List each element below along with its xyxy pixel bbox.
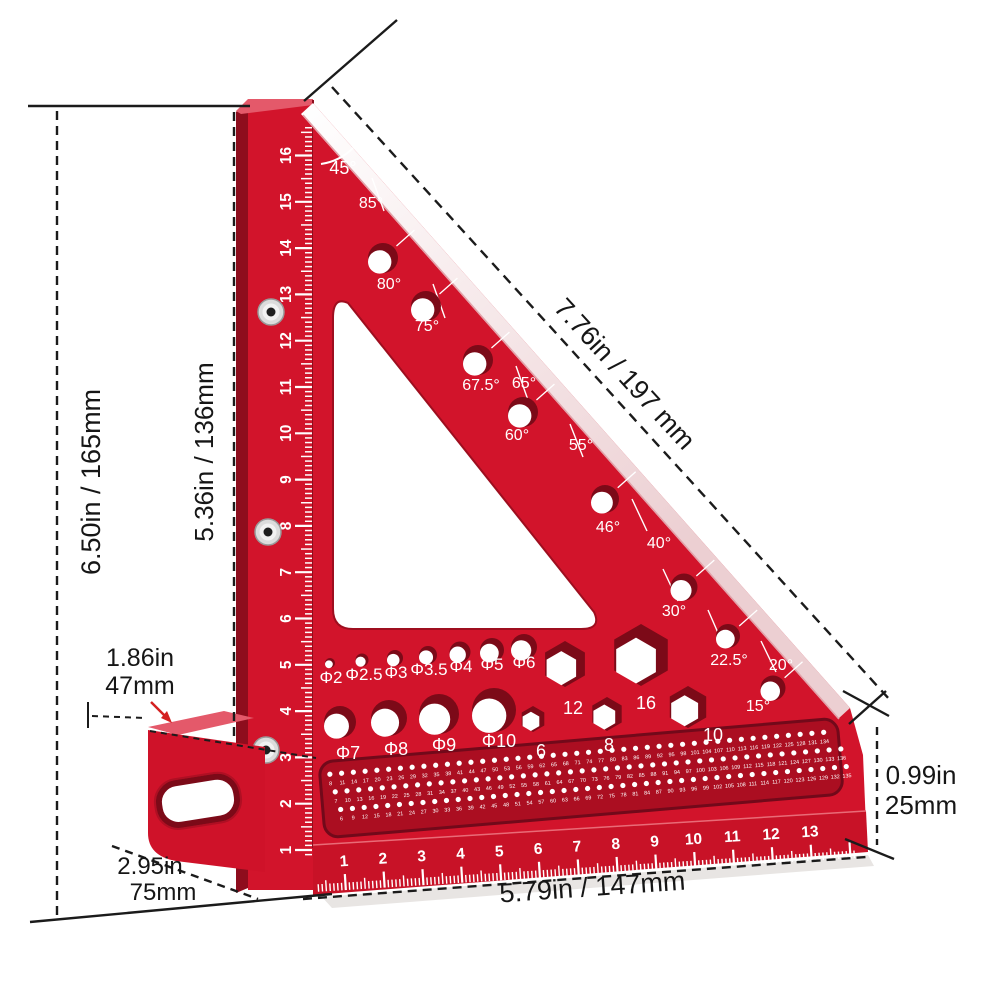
dot-grid-number: 11 xyxy=(339,780,345,786)
round-hole-opening xyxy=(324,714,349,739)
dot-grid-number: 116 xyxy=(749,745,758,752)
angle-label-40: 40° xyxy=(647,535,671,552)
dot-grid-number: 56 xyxy=(516,765,522,771)
dot-grid-number: 21 xyxy=(397,811,403,817)
dot-grid-number: 91 xyxy=(662,771,668,777)
foot-pointer-arrow xyxy=(151,702,172,723)
angle-label-15: 15° xyxy=(746,698,770,715)
b-ruler-tick xyxy=(850,842,851,858)
dot-grid-number: 46 xyxy=(486,786,492,792)
round-hole-opening xyxy=(591,492,613,514)
dim-depth-label-mm: 75mm xyxy=(130,879,197,906)
dot-grid-number: 112 xyxy=(743,764,752,771)
b-ruler-number: 2 xyxy=(378,850,388,868)
dot-grid-number: 80 xyxy=(610,757,616,763)
angle-label-85: 85° xyxy=(359,195,383,212)
angle-label-20: 20° xyxy=(769,657,793,674)
dot-grid-number: 110 xyxy=(726,747,735,754)
dot-grid-number: 39 xyxy=(468,805,474,811)
b-ruler-tick xyxy=(733,850,734,866)
dot-grid-number: 48 xyxy=(503,802,509,808)
dot-grid-number: 70 xyxy=(580,778,586,784)
dot-grid-number: 49 xyxy=(497,785,503,791)
angle-label-46: 46° xyxy=(596,519,620,536)
dot-grid-number: 73 xyxy=(592,777,598,783)
b-ruler-tick xyxy=(384,872,385,888)
b-ruler-number: 6 xyxy=(533,841,543,859)
dot-grid-number: 7 xyxy=(334,799,337,805)
b-ruler-number: 7 xyxy=(572,838,582,856)
angle-label-60: 60° xyxy=(505,427,529,444)
dot-grid-number: 87 xyxy=(656,789,662,795)
dot-grid-number: 104 xyxy=(702,749,711,756)
dot-grid-number: 130 xyxy=(813,758,822,765)
v-ruler-number: 2 xyxy=(278,799,295,808)
angle-label-75: 75° xyxy=(415,318,439,335)
dot-grid-number: 90 xyxy=(667,788,673,794)
hole-label-phi2: Φ2 xyxy=(319,668,342,687)
b-ruler-number: 12 xyxy=(762,826,780,844)
hole-label-phi2-5: Φ2.5 xyxy=(345,665,382,684)
dot-grid-number: 106 xyxy=(719,766,728,773)
dim-inner-height-label: 5.36in / 136mm xyxy=(189,362,219,541)
dot-grid-number: 83 xyxy=(621,756,627,762)
dot-grid-number: 28 xyxy=(415,792,421,798)
dot-grid-number: 43 xyxy=(474,787,480,793)
dot-grid-number: 113 xyxy=(738,746,747,753)
dot-grid-number: 88 xyxy=(650,772,656,778)
dot-grid-number: 60 xyxy=(550,798,556,804)
dot-grid-number: 30 xyxy=(432,808,438,814)
angle-label-45: 45° xyxy=(329,158,356,178)
b-ruler-tick xyxy=(792,851,793,862)
dot-grid-number: 14 xyxy=(351,779,357,785)
hex-label-8: 8 xyxy=(604,735,614,755)
hole-label-phi8: Φ8 xyxy=(384,739,408,759)
round-hole-opening xyxy=(472,699,506,733)
angle-label-80: 80° xyxy=(377,276,401,293)
dim-foot-label-in: 1.86in xyxy=(106,644,174,672)
hole-label-phi10: Φ10 xyxy=(482,731,516,751)
b-ruler-number: 4 xyxy=(456,845,466,863)
dot-grid-number: 118 xyxy=(767,762,776,769)
hole-label-phi7: Φ7 xyxy=(336,743,360,763)
dot-grid-number: 129 xyxy=(819,775,828,782)
dot-grid-number: 20 xyxy=(374,777,380,783)
b-ruler-tick xyxy=(753,853,754,864)
dot-grid-number: 107 xyxy=(714,748,723,755)
dot-grid-number: 75 xyxy=(609,793,615,799)
v-ruler-number: 11 xyxy=(278,378,295,395)
dot-grid-number: 51 xyxy=(515,801,521,807)
angle-label-22-5: 22.5° xyxy=(710,652,748,669)
b-ruler-tick xyxy=(326,880,327,891)
dot-grid-number: 133 xyxy=(825,757,834,764)
dot-grid-number: 117 xyxy=(772,779,781,786)
dot-grid-number: 24 xyxy=(409,810,415,816)
dot-grid-number: 99 xyxy=(703,785,709,791)
dot-grid-number: 128 xyxy=(796,741,805,748)
v-ruler-number: 16 xyxy=(278,147,295,165)
dot-grid-number: 64 xyxy=(556,780,562,786)
b-ruler-number: 5 xyxy=(494,843,504,861)
dot-grid-number: 6 xyxy=(340,816,343,822)
dot-grid-number: 109 xyxy=(731,765,740,772)
b-ruler-tick xyxy=(442,873,443,884)
b-ruler-number: 13 xyxy=(801,823,820,841)
dot-grid-number: 44 xyxy=(469,769,475,775)
hole-label-phi3: Φ3 xyxy=(384,663,407,682)
dot-grid-number: 65 xyxy=(551,762,557,768)
dot-grid-number: 78 xyxy=(620,792,626,798)
dot-grid-number: 9 xyxy=(352,815,355,821)
v-ruler-number: 14 xyxy=(278,239,295,257)
dot-grid-number: 97 xyxy=(686,769,692,775)
dot-grid-number: 120 xyxy=(784,778,793,785)
product-dimension-diagram: 12345678910111213141516 xyxy=(0,0,1000,1000)
dot-grid-number: 72 xyxy=(597,794,603,800)
dot-grid-number: 8 xyxy=(329,781,332,787)
dot-grid-number: 111 xyxy=(749,781,758,788)
hole-label-phi6: Φ6 xyxy=(512,653,535,672)
dot-grid-number: 18 xyxy=(385,812,391,818)
dim-overall-height-label: 6.50in / 165mm xyxy=(76,389,106,575)
dot-grid-number: 98 xyxy=(680,751,686,757)
v-ruler-number: 13 xyxy=(278,285,295,303)
b-ruler-number: 10 xyxy=(684,831,702,849)
dot-grid-number: 58 xyxy=(533,782,539,788)
round-hole-opening xyxy=(463,352,486,375)
dot-grid-number: 62 xyxy=(539,763,545,769)
hex-label-16: 16 xyxy=(636,693,656,713)
b-ruler-number: 9 xyxy=(650,833,660,851)
dot-grid-number: 34 xyxy=(439,790,445,796)
round-hole-opening xyxy=(671,580,692,601)
b-ruler-tick xyxy=(830,849,831,860)
dim-thickness-label-in: 0.99in xyxy=(886,760,957,790)
dot-grid-number: 86 xyxy=(633,755,639,761)
dot-grid-number: 37 xyxy=(450,789,456,795)
dim-depth-label-in: 2.95in xyxy=(117,853,182,880)
b-ruler-tick xyxy=(481,870,482,881)
dot-grid-number: 16 xyxy=(368,796,374,802)
round-hole-opening xyxy=(419,704,450,735)
dot-grid-number: 122 xyxy=(773,743,782,750)
dot-grid-number: 125 xyxy=(785,742,794,749)
b-ruler-tick xyxy=(772,847,773,863)
ext-line-hyp-top xyxy=(304,20,397,101)
dot-grid-number: 92 xyxy=(657,753,663,759)
dot-grid-number: 26 xyxy=(398,775,404,781)
screw-top xyxy=(258,299,284,325)
dot-grid-number: 19 xyxy=(380,795,386,801)
dot-grid-number: 17 xyxy=(363,778,369,784)
dot-grid-number: 36 xyxy=(456,806,462,812)
dot-grid-number: 23 xyxy=(386,776,392,782)
dim-line-foot-a xyxy=(92,716,146,718)
round-hole-opening xyxy=(371,709,399,737)
dot-grid-number: 61 xyxy=(545,781,551,787)
dot-grid-number: 33 xyxy=(444,807,450,813)
dot-grid-number: 131 xyxy=(808,740,817,747)
b-ruler-number: 11 xyxy=(724,828,742,846)
dot-grid-number: 79 xyxy=(615,775,621,781)
dot-grid-number: 32 xyxy=(422,773,428,779)
b-ruler-tick xyxy=(365,878,366,889)
dot-grid-number: 35 xyxy=(433,772,439,778)
dot-grid-number: 13 xyxy=(356,797,362,803)
v-ruler-number: 4 xyxy=(278,706,295,715)
dot-grid-number: 74 xyxy=(586,759,592,765)
dot-grid-number: 95 xyxy=(668,752,674,758)
hole-label-phi3-5: Φ3.5 xyxy=(410,660,447,679)
b-ruler-tick xyxy=(461,867,462,883)
dot-grid-number: 115 xyxy=(755,763,764,770)
dot-grid-number: 47 xyxy=(480,768,486,774)
angle-label-67-5: 67.5° xyxy=(462,377,500,394)
dot-grid-number: 94 xyxy=(674,770,680,776)
dot-grid-number: 55 xyxy=(521,783,527,789)
dot-grid-number: 40 xyxy=(462,788,468,794)
dot-grid-number: 126 xyxy=(807,776,816,783)
dot-grid-number: 89 xyxy=(645,754,651,760)
dot-grid-number: 108 xyxy=(737,782,746,789)
dot-grid-number: 68 xyxy=(563,761,569,767)
dot-grid-number: 50 xyxy=(492,767,498,773)
v-ruler-number: 10 xyxy=(278,425,295,442)
dot-grid-number: 102 xyxy=(713,784,722,791)
b-ruler-number: 8 xyxy=(611,836,621,854)
dot-grid-number: 82 xyxy=(627,774,633,780)
dot-grid-number: 103 xyxy=(708,767,717,774)
dot-grid-number: 15 xyxy=(374,813,380,819)
dot-grid-number: 100 xyxy=(696,768,705,775)
b-ruler-tick xyxy=(714,856,715,867)
v-ruler-number: 15 xyxy=(278,193,295,211)
dot-grid-number: 135 xyxy=(842,773,851,780)
dot-grid-number: 45 xyxy=(491,803,497,809)
dot-grid-number: 57 xyxy=(538,799,544,805)
dot-grid-number: 29 xyxy=(410,774,416,780)
hole-label-phi5: Φ5 xyxy=(480,655,503,674)
dot-grid-number: 25 xyxy=(403,793,409,799)
dot-grid-number: 105 xyxy=(725,783,734,790)
v-ruler-number: 12 xyxy=(278,332,295,349)
dot-grid-number: 12 xyxy=(362,814,368,820)
dot-grid-number: 27 xyxy=(421,809,427,815)
dot-grid-number: 59 xyxy=(527,764,533,770)
dot-grid-number: 134 xyxy=(820,739,829,746)
screw-middle xyxy=(255,519,281,545)
dot-grid-number: 41 xyxy=(457,770,463,776)
dot-grid-number: 124 xyxy=(790,760,799,767)
dot-grid-number: 85 xyxy=(639,773,645,779)
dot-grid-number: 66 xyxy=(573,796,579,802)
dot-grid-number: 71 xyxy=(574,760,580,766)
dot-grid-number: 119 xyxy=(761,744,770,751)
round-hole-opening xyxy=(716,630,735,649)
dim-foot-label-mm: 47mm xyxy=(105,672,174,700)
round-hole-opening xyxy=(368,250,391,273)
hole-label-phi4: Φ4 xyxy=(449,657,472,676)
angle-label-65: 65° xyxy=(512,375,536,392)
dot-grid-number: 101 xyxy=(690,750,699,757)
hole-label-phi9: Φ9 xyxy=(432,735,456,755)
b-ruler-tick xyxy=(403,875,404,886)
b-ruler-tick xyxy=(811,845,812,861)
v-ruler-number: 6 xyxy=(278,614,295,623)
square-ruler-diagram: 12345678910111213141516 xyxy=(0,0,1000,1000)
dot-grid-number: 10 xyxy=(345,798,351,804)
dot-grid-number: 54 xyxy=(526,800,532,806)
b-ruler-tick xyxy=(345,874,346,890)
dot-grid-number: 81 xyxy=(632,791,638,797)
b-ruler-tick xyxy=(422,869,423,885)
round-hole-opening xyxy=(508,404,531,427)
dot-grid-number: 93 xyxy=(679,787,685,793)
dot-grid-number: 132 xyxy=(831,774,840,781)
dot-grid-number: 77 xyxy=(598,758,604,764)
dot-grid-number: 42 xyxy=(479,804,485,810)
dot-grid-number: 136 xyxy=(837,756,846,763)
hex-label-6: 6 xyxy=(536,741,546,761)
dot-grid-number: 96 xyxy=(691,786,697,792)
dot-grid-number: 22 xyxy=(392,794,398,800)
dot-grid-number: 114 xyxy=(760,780,769,787)
v-ruler-number: 1 xyxy=(278,845,295,854)
v-ruler-number: 7 xyxy=(278,568,295,577)
dot-grid-number: 63 xyxy=(562,797,568,803)
dot-grid-number: 69 xyxy=(585,795,591,801)
dot-grid-number: 31 xyxy=(427,791,433,797)
dot-grid-number: 84 xyxy=(644,790,650,796)
dot-grid-number: 127 xyxy=(802,759,811,766)
angle-label-55: 55° xyxy=(569,437,593,454)
dot-grid-number: 121 xyxy=(778,761,787,768)
dot-grid-number: 76 xyxy=(603,776,609,782)
dot-grid-number: 38 xyxy=(445,771,451,777)
hex-label-10: 10 xyxy=(703,725,723,745)
hex-label-12: 12 xyxy=(563,698,583,718)
dot-grid-number: 53 xyxy=(504,766,510,772)
b-ruler-tick xyxy=(694,852,695,868)
v-ruler-number: 5 xyxy=(278,660,295,669)
dim-thickness-label-mm: 25mm xyxy=(885,790,957,820)
dot-grid-number: 52 xyxy=(509,784,515,790)
dot-grid-number: 67 xyxy=(568,779,574,785)
dot-grid-number: 123 xyxy=(795,777,804,784)
b-ruler-number: 3 xyxy=(417,848,427,866)
v-ruler-number: 9 xyxy=(278,475,295,484)
angle-label-30: 30° xyxy=(662,603,686,620)
b-ruler-number: 1 xyxy=(339,853,349,871)
